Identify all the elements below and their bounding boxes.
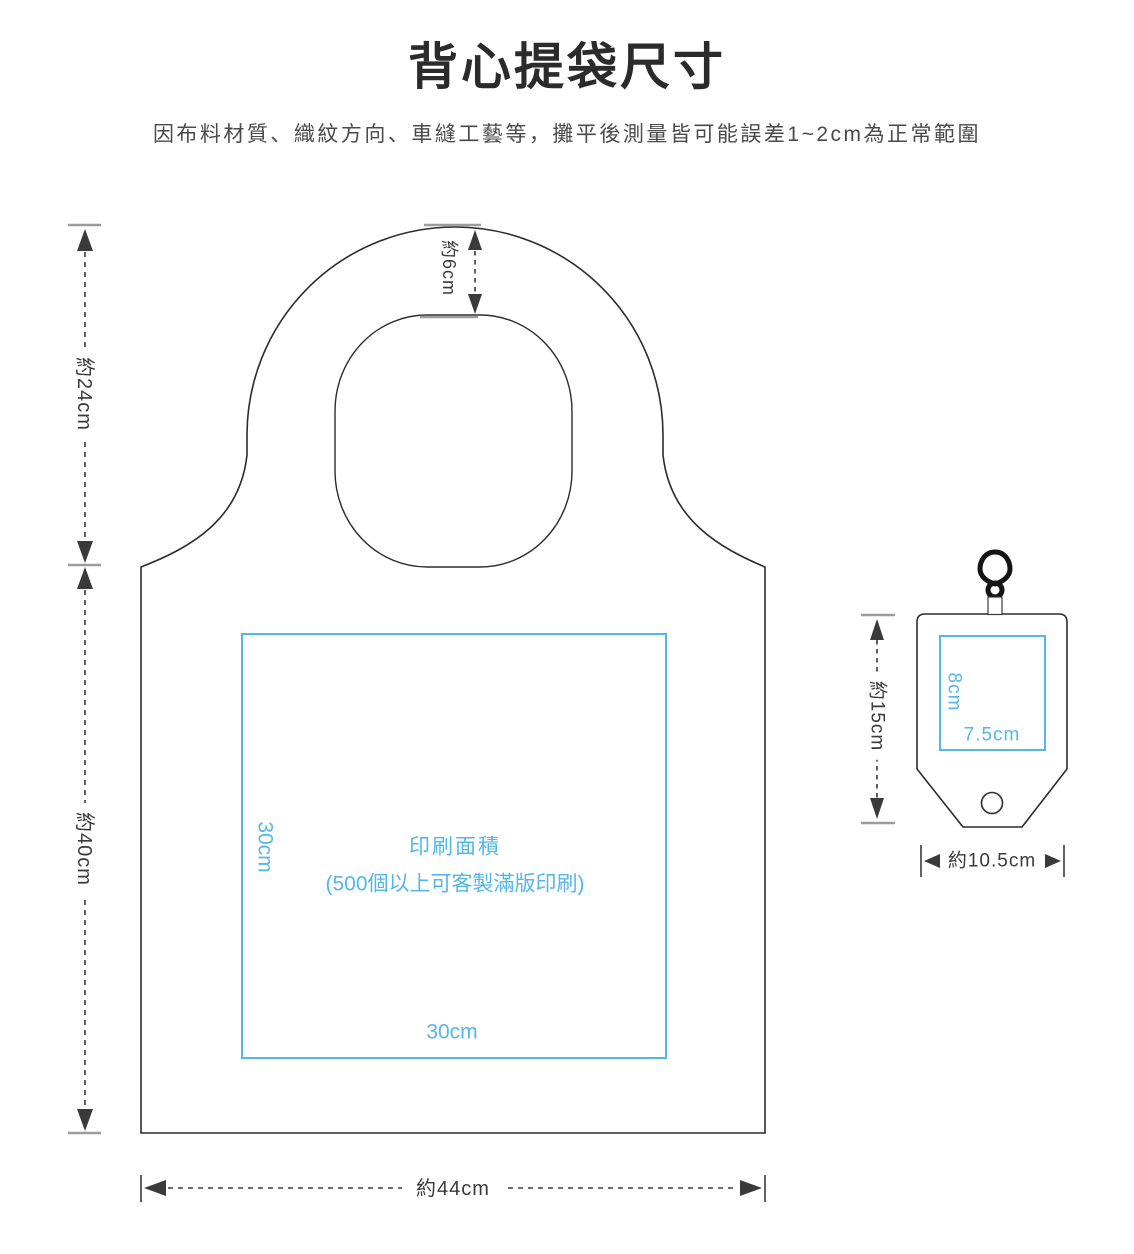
arrow-up-icon <box>468 230 482 250</box>
pouch-print-width-label: 7.5cm <box>964 726 1021 745</box>
print-area-title: 印刷面積 <box>409 837 501 858</box>
snap-button-icon <box>982 793 1003 814</box>
dim-label-body-height: 約40cm <box>74 803 94 895</box>
arrow-up-icon <box>870 619 884 640</box>
arrow-left-icon <box>144 1180 166 1196</box>
handle-hole <box>335 315 572 567</box>
dim-label-handle-height: 約24cm <box>74 348 94 440</box>
diagram-canvas <box>0 0 1134 1254</box>
print-area-note: (500個以上可客製滿版印刷) <box>325 874 584 895</box>
dim-label-handle-gap: 約6cm <box>440 231 458 305</box>
arrow-left-icon <box>924 854 940 868</box>
arrow-down-icon <box>77 1109 93 1131</box>
arrow-right-icon <box>1045 854 1061 868</box>
size-diagram-page: 背心提袋尺寸 因布料材質、織紋方向、車縫工藝等，攤平後測量皆可能誤差1~2cm為… <box>0 0 1134 1254</box>
arrow-up-icon <box>77 229 93 251</box>
carabiner-clip-icon <box>980 552 1010 584</box>
bag-outline <box>141 227 765 1133</box>
bag-outline-group <box>141 227 765 1133</box>
print-area-width-label: 30cm <box>426 1022 477 1043</box>
arrow-right-icon <box>740 1180 762 1196</box>
arrow-down-icon <box>468 294 482 314</box>
dim-label-body-width: 約44cm <box>402 1179 504 1199</box>
pouch-print-height-label: 8cm <box>945 673 964 712</box>
pouch-height-label: 約15cm <box>868 672 887 760</box>
pouch-width-label: 約10.5cm <box>948 852 1036 871</box>
print-area-height-label: 30cm <box>255 821 276 872</box>
clip-strap <box>988 597 1002 615</box>
arrow-down-icon <box>870 798 884 819</box>
arrow-up-icon <box>77 567 93 589</box>
arrow-down-icon <box>77 541 93 563</box>
clip-ring-icon <box>988 583 1002 597</box>
pouch-group <box>917 552 1067 827</box>
